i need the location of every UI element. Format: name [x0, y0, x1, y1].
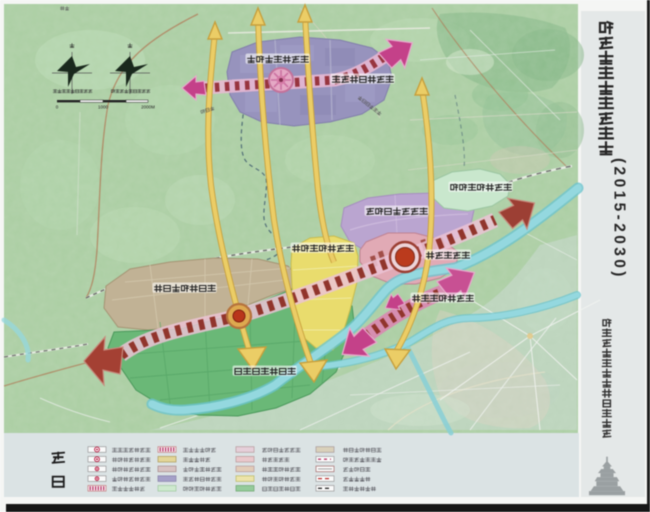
svg-text:2000M: 2000M	[141, 105, 155, 110]
svg-text:1000: 1000	[98, 105, 109, 110]
svg-text:(2015-2030): (2015-2030)	[611, 158, 628, 280]
